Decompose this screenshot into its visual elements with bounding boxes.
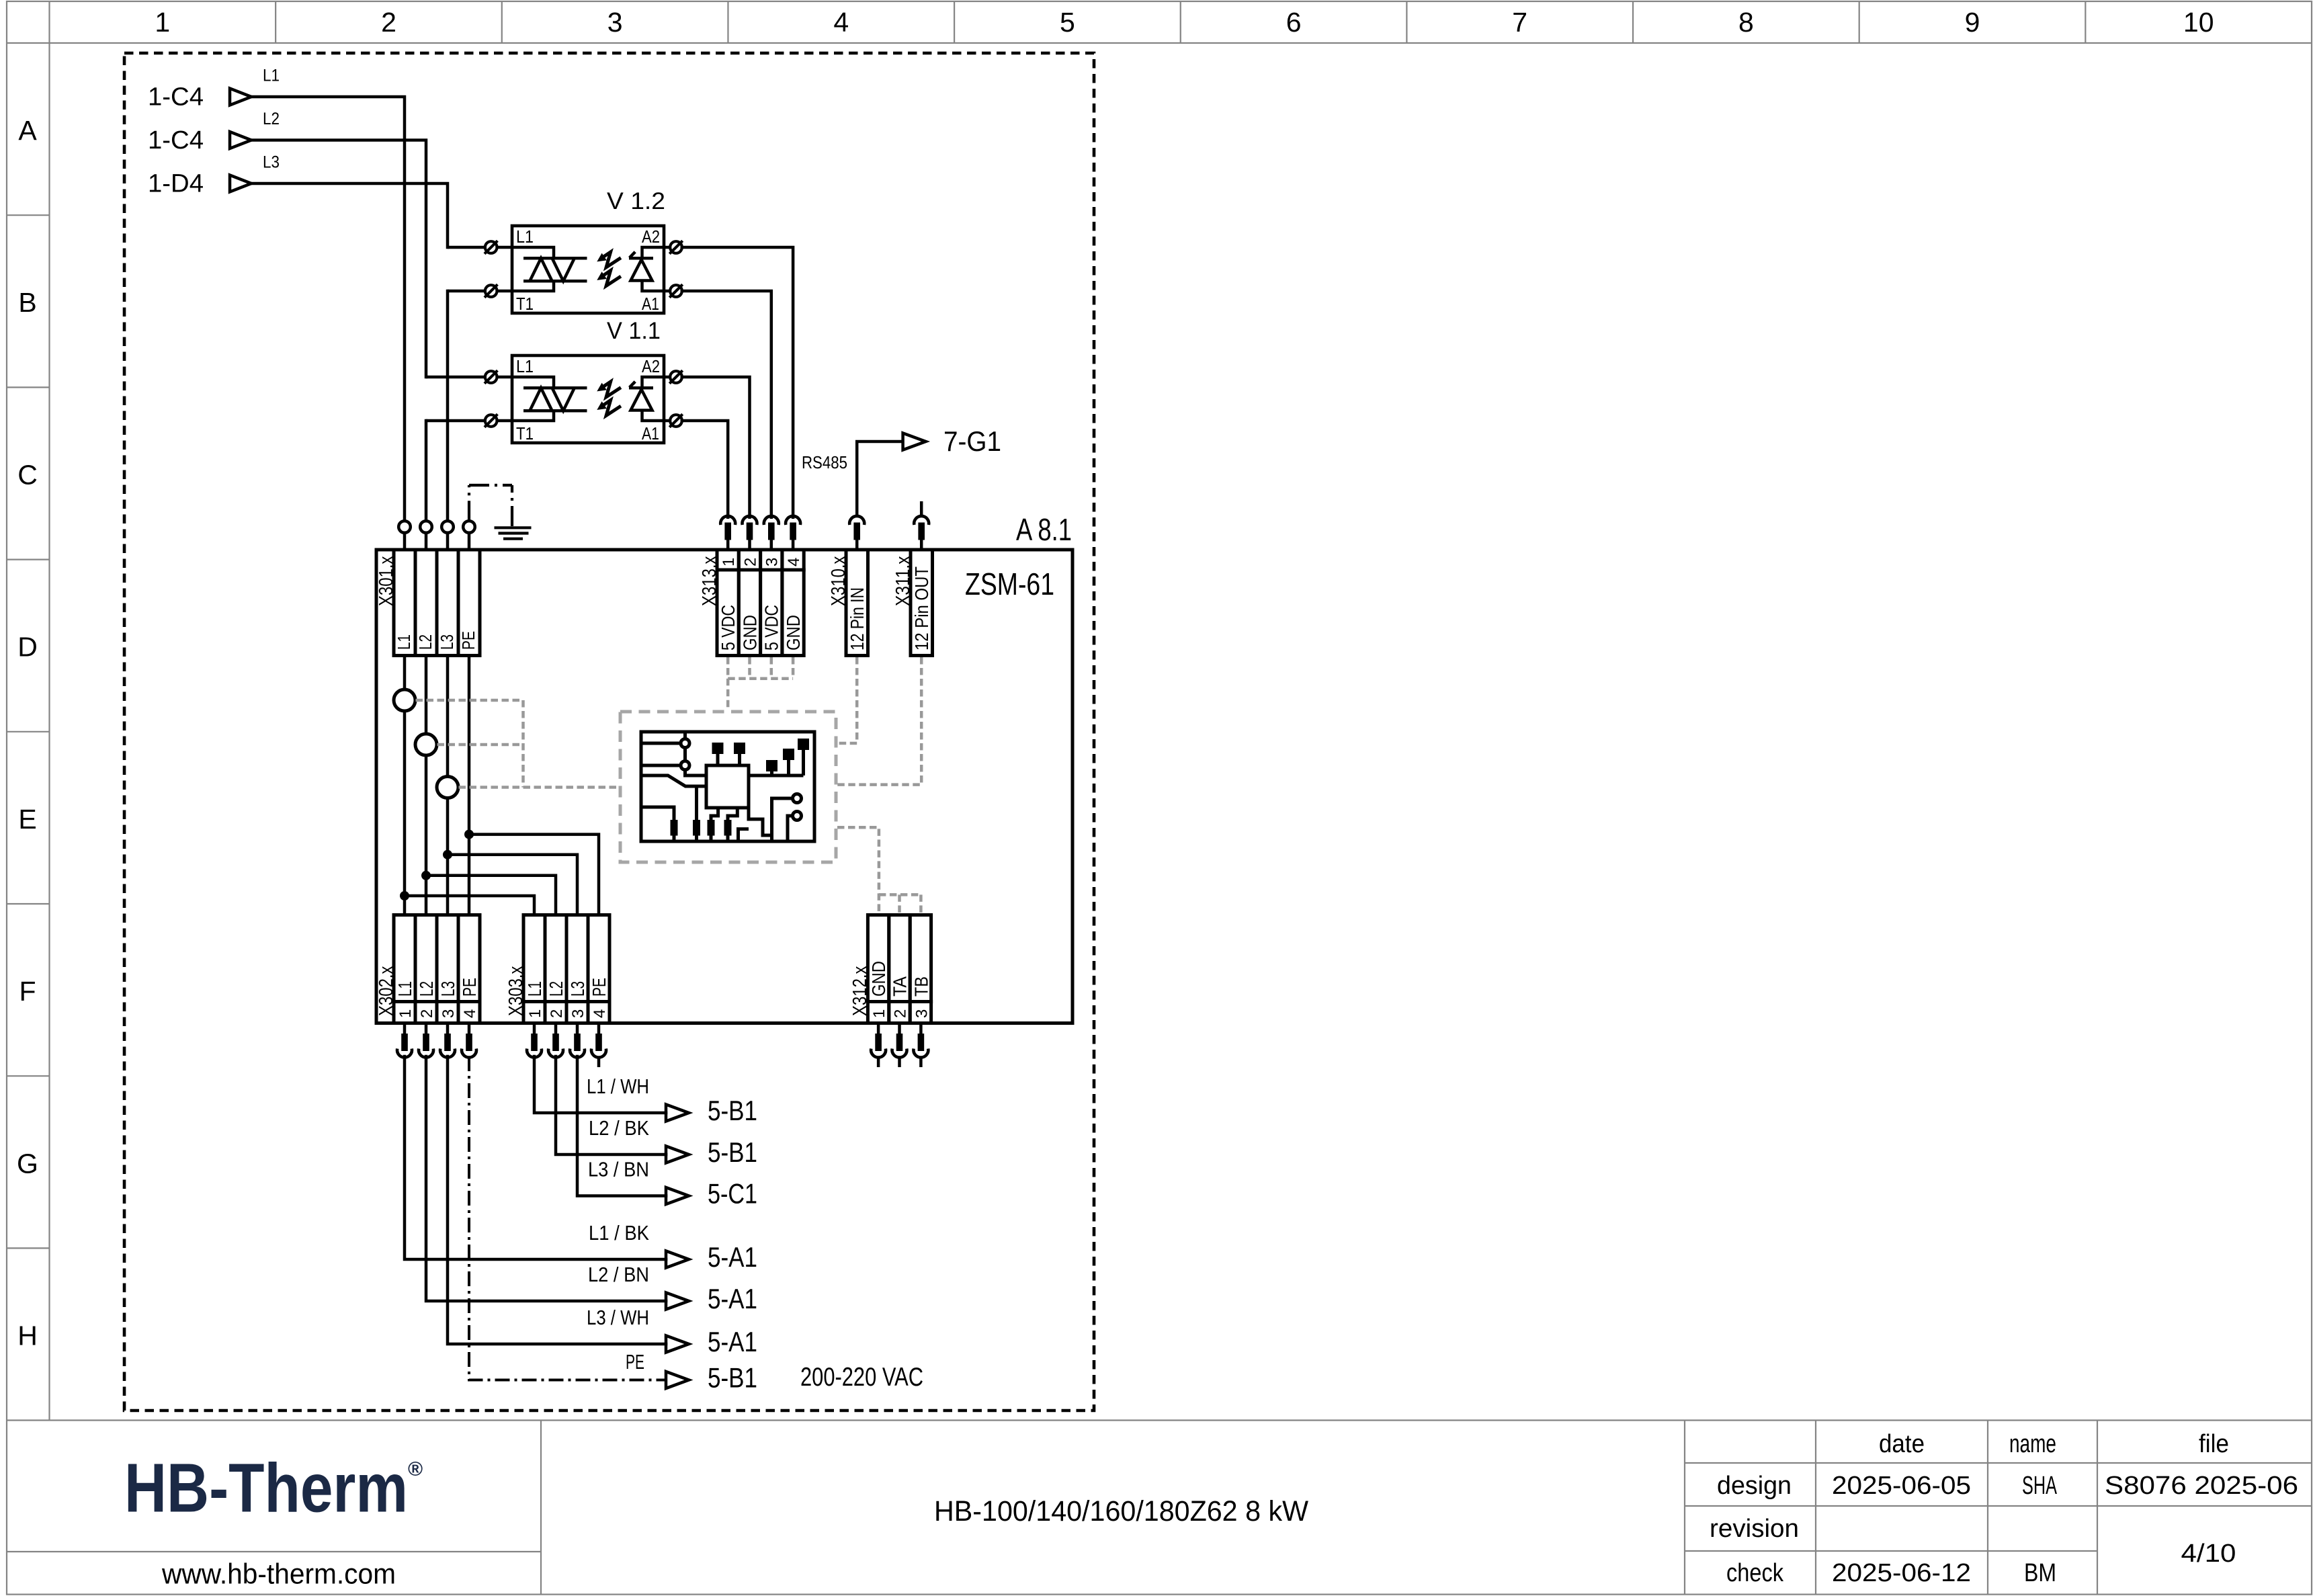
svg-text:L1: L1 [394,981,415,997]
svg-text:S8076 2025-06: S8076 2025-06 [2105,1472,2298,1500]
svg-text:L2: L2 [546,981,566,997]
svg-text:12 Pin OUT: 12 Pin OUT [911,566,932,650]
svg-text:10: 10 [2183,7,2214,38]
svg-text:9: 9 [1965,7,1980,38]
svg-text:200-220 VAC: 200-220 VAC [800,1363,923,1392]
svg-text:X313.x: X313.x [699,556,720,606]
svg-text:L3: L3 [437,634,457,650]
svg-text:L3 / WH: L3 / WH [587,1306,649,1329]
svg-text:L1: L1 [524,981,545,997]
svg-text:C: C [17,460,38,491]
svg-text:date: date [1879,1430,1925,1458]
svg-text:GND: GND [868,961,889,997]
svg-text:3: 3 [763,558,782,566]
svg-text:4: 4 [785,558,803,566]
svg-text:ZSM-61: ZSM-61 [965,566,1054,601]
svg-text:F: F [19,976,36,1007]
svg-text:check: check [1726,1559,1784,1587]
svg-text:E: E [18,804,36,835]
svg-text:PE: PE [459,978,480,997]
svg-text:A2: A2 [642,226,660,247]
svg-text:4/10: 4/10 [2181,1540,2236,1568]
svg-text:D: D [17,632,38,663]
svg-text:A1: A1 [642,294,659,314]
svg-text:V 1.2: V 1.2 [607,188,665,214]
svg-text:name: name [2009,1430,2056,1458]
svg-text:1: 1 [396,1009,415,1018]
svg-text:A1: A1 [642,423,659,444]
svg-text:HB-Therm: HB-Therm [124,1450,408,1527]
svg-text:L1: L1 [516,356,534,376]
svg-text:5-A1: 5-A1 [708,1241,757,1273]
svg-text:L3: L3 [263,153,280,172]
svg-text:L2: L2 [415,634,435,650]
svg-text:revision: revision [1710,1515,1799,1543]
svg-text:design: design [1717,1472,1792,1500]
svg-text:G: G [17,1148,38,1179]
svg-text:4: 4 [461,1009,479,1018]
svg-text:7-G1: 7-G1 [943,425,1001,457]
svg-text:2: 2 [892,1009,910,1018]
svg-text:12 Pin IN: 12 Pin IN [847,587,868,650]
svg-text:L2: L2 [416,981,437,997]
svg-text:1: 1 [870,1009,888,1018]
svg-text:A: A [18,115,37,146]
svg-text:L2 / BK: L2 / BK [589,1116,649,1140]
svg-text:L3: L3 [567,981,588,997]
svg-text:TB: TB [911,976,931,997]
svg-text:1-C4: 1-C4 [148,126,204,155]
svg-text:5-C1: 5-C1 [708,1178,757,1210]
svg-text:4: 4 [591,1009,609,1018]
svg-text:8: 8 [1738,7,1754,38]
svg-text:4: 4 [833,7,849,38]
svg-text:HB-100/140/160/180Z62 8 kW: HB-100/140/160/180Z62 8 kW [934,1495,1308,1527]
svg-text:L1: L1 [263,67,280,85]
svg-text:1-D4: 1-D4 [148,170,204,198]
svg-text:1-C4: 1-C4 [148,83,204,112]
svg-text:1: 1 [526,1009,544,1018]
svg-text:2: 2 [741,558,759,566]
svg-text:www.hb-therm.com: www.hb-therm.com [161,1558,396,1591]
svg-text:A 8.1: A 8.1 [1016,512,1072,547]
svg-text:L1: L1 [516,226,534,247]
svg-text:GND: GND [739,615,760,650]
svg-text:file: file [2199,1430,2229,1458]
svg-text:L1 / WH: L1 / WH [587,1075,649,1098]
svg-text:RS485: RS485 [802,452,847,472]
svg-text:3: 3 [607,7,623,38]
svg-text:5: 5 [1060,7,1075,38]
svg-text:®: ® [408,1458,423,1480]
svg-text:5 VDC: 5 VDC [761,605,782,650]
svg-text:L2: L2 [263,110,280,128]
svg-text:5 VDC: 5 VDC [718,605,739,650]
svg-text:X301.x: X301.x [376,556,397,606]
svg-text:2: 2 [381,7,396,38]
svg-text:B: B [18,287,36,318]
svg-text:2025-06-05: 2025-06-05 [1832,1472,1971,1500]
svg-text:6: 6 [1286,7,1302,38]
svg-text:TA: TA [890,976,911,997]
svg-text:3: 3 [913,1009,931,1018]
svg-text:PE: PE [626,1350,644,1374]
svg-text:L3 / BN: L3 / BN [588,1158,649,1181]
svg-text:5-A1: 5-A1 [708,1283,757,1314]
svg-text:5-B1: 5-B1 [708,1095,757,1126]
svg-text:1: 1 [155,7,170,38]
svg-text:PE: PE [458,631,478,650]
svg-text:5-A1: 5-A1 [708,1326,757,1357]
svg-text:T1: T1 [516,423,534,444]
svg-text:7: 7 [1512,7,1527,38]
svg-text:H: H [17,1320,38,1351]
svg-text:BM: BM [2024,1559,2056,1587]
svg-text:L2 / BN: L2 / BN [588,1263,649,1286]
svg-text:2025-06-12: 2025-06-12 [1832,1559,1971,1587]
svg-text:T1: T1 [516,294,534,314]
svg-text:GND: GND [783,615,804,650]
svg-text:2: 2 [548,1009,566,1018]
svg-text:3: 3 [439,1009,458,1018]
svg-text:3: 3 [569,1009,587,1018]
svg-text:2: 2 [418,1009,436,1018]
svg-text:L3: L3 [437,981,458,997]
svg-text:V 1.1: V 1.1 [607,318,661,344]
svg-text:A2: A2 [642,356,660,376]
svg-text:5-B1: 5-B1 [708,1136,757,1168]
svg-text:L1 / BK: L1 / BK [589,1221,649,1245]
svg-text:PE: PE [589,978,609,997]
svg-text:L1: L1 [394,634,414,650]
svg-text:SHA: SHA [2022,1472,2057,1500]
svg-text:5-B1: 5-B1 [708,1362,757,1394]
svg-text:1: 1 [720,558,738,566]
